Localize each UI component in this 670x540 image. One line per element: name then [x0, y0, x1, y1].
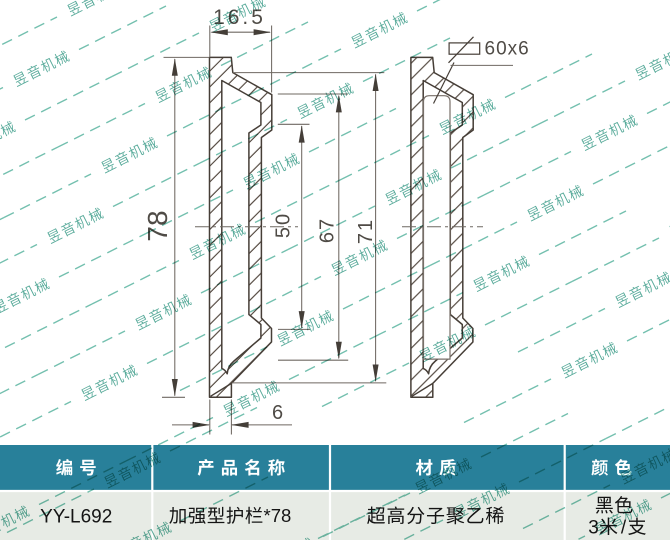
- svg-text:YY-L692: YY-L692: [40, 507, 112, 528]
- svg-text:3: 3: [588, 518, 599, 539]
- svg-text:50: 50: [273, 212, 295, 238]
- svg-text:78: 78: [142, 210, 173, 241]
- svg-text:60x6: 60x6: [485, 39, 530, 60]
- svg-text:71: 71: [355, 218, 377, 244]
- svg-text:/: /: [621, 518, 627, 539]
- svg-text:*78: *78: [264, 505, 292, 526]
- svg-text:6: 6: [272, 402, 283, 424]
